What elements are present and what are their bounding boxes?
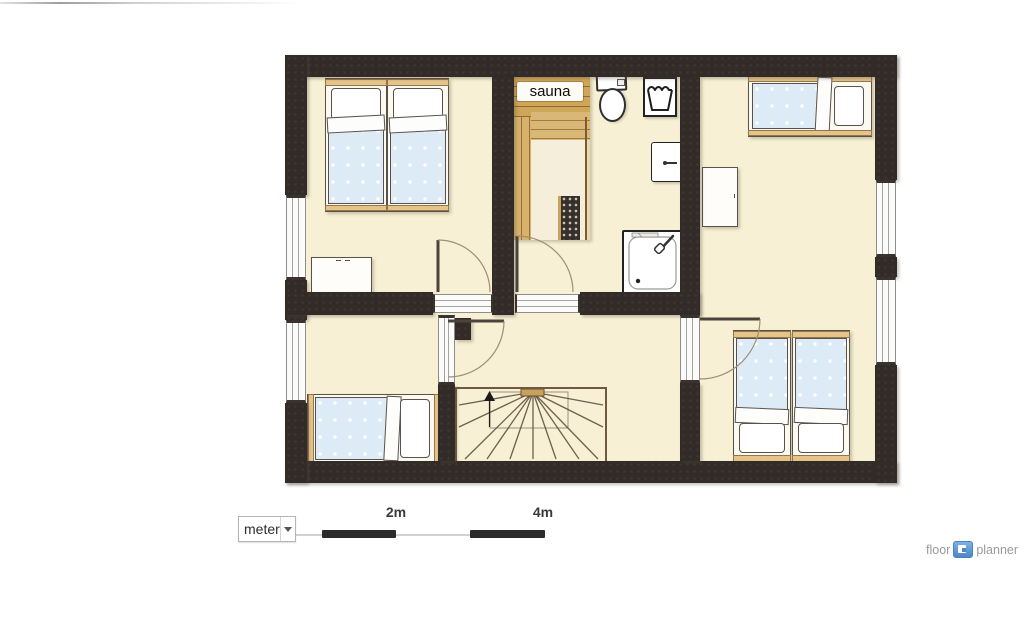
wall-cabinet-icon bbox=[651, 142, 683, 182]
duvet bbox=[328, 125, 384, 204]
toilet-flush-button bbox=[617, 79, 625, 86]
bed-footboard bbox=[792, 331, 850, 338]
sauna-glass-wall bbox=[585, 117, 587, 240]
bed-headboard bbox=[325, 79, 387, 86]
bed-footboard bbox=[308, 394, 314, 463]
blanket-fold bbox=[327, 114, 386, 133]
shower-icon bbox=[622, 230, 683, 296]
washtub-glyph bbox=[645, 79, 675, 115]
desk bbox=[702, 167, 738, 227]
blanket-fold bbox=[389, 114, 448, 133]
window bbox=[286, 320, 306, 403]
dresser bbox=[311, 257, 372, 297]
wall-stub bbox=[455, 318, 471, 340]
duvet bbox=[390, 125, 446, 204]
window bbox=[876, 180, 896, 257]
door-jamb bbox=[680, 315, 700, 383]
door-jamb bbox=[438, 315, 455, 385]
staircase bbox=[455, 387, 607, 463]
scale-tick-label: 4m bbox=[523, 504, 563, 520]
floorplanner-logo[interactable]: floor planner bbox=[926, 541, 1018, 558]
bed-single bbox=[733, 330, 791, 463]
bed-headboard bbox=[387, 79, 449, 86]
sauna-heater-icon bbox=[558, 196, 580, 240]
bed-single bbox=[748, 75, 872, 137]
wall-interior bbox=[680, 77, 700, 315]
wall-outer-bottom bbox=[285, 461, 897, 483]
bed-footboard bbox=[733, 331, 791, 338]
pillow bbox=[739, 423, 785, 453]
duvet bbox=[795, 338, 847, 416]
logo-text-floor: floor bbox=[926, 543, 950, 557]
blanket-fold bbox=[383, 396, 401, 462]
bed-footboard bbox=[387, 205, 449, 211]
shower-glyph bbox=[624, 232, 681, 294]
stairs-up-arrow-icon bbox=[484, 391, 495, 427]
door-sill bbox=[515, 294, 580, 313]
dresser-handle bbox=[336, 260, 341, 261]
duvet bbox=[736, 338, 788, 416]
wall-interior bbox=[285, 292, 433, 315]
wall-outer-left bbox=[285, 55, 307, 195]
logo-text-planner: planner bbox=[976, 543, 1018, 557]
wall-interior bbox=[438, 385, 455, 461]
floorplanner-logo-icon bbox=[953, 541, 973, 558]
pillow bbox=[798, 423, 844, 453]
scan-artifact-line bbox=[0, 2, 300, 4]
pillow bbox=[400, 399, 430, 458]
desk-handle bbox=[734, 194, 735, 198]
dresser-handle bbox=[345, 260, 350, 261]
scale-bar-segment bbox=[470, 530, 545, 538]
scale-bar-segment bbox=[322, 530, 396, 538]
wall-interior bbox=[680, 383, 700, 461]
bed-single bbox=[325, 78, 387, 212]
sauna-cabin: sauna bbox=[514, 77, 590, 240]
wall-outer-right bbox=[875, 55, 897, 180]
sauna-label: sauna bbox=[517, 82, 583, 101]
bed-single bbox=[792, 330, 850, 463]
door-sill bbox=[433, 294, 493, 313]
washbasin-icon bbox=[643, 77, 677, 117]
wall-outer-top bbox=[285, 55, 897, 77]
toilet-icon bbox=[596, 74, 628, 124]
dropdown-arrow-button[interactable] bbox=[280, 517, 295, 541]
bed-single bbox=[387, 78, 449, 212]
bed-footboard bbox=[325, 205, 387, 211]
floorplan-canvas: sauna bbox=[0, 0, 1024, 622]
scale-tick-label: 2m bbox=[376, 504, 416, 520]
wall-outer-right bbox=[875, 257, 897, 277]
blanket-fold bbox=[814, 77, 832, 136]
dropdown-arrow-icon bbox=[284, 527, 292, 532]
wall-outer-right bbox=[875, 365, 897, 483]
window bbox=[876, 277, 896, 365]
unit-dropdown-value: meter bbox=[239, 521, 280, 537]
cabinet-handle-bar bbox=[666, 162, 677, 164]
wall-interior bbox=[492, 77, 514, 315]
wall-interior bbox=[580, 292, 700, 315]
pillow bbox=[834, 86, 864, 126]
window bbox=[286, 195, 306, 280]
duvet bbox=[315, 397, 394, 460]
bed-single bbox=[307, 394, 441, 463]
toilet-bowl bbox=[599, 88, 626, 122]
stair-treads bbox=[457, 389, 605, 461]
sauna-bench-lower bbox=[531, 112, 590, 140]
unit-dropdown[interactable]: meter bbox=[238, 516, 296, 542]
bed-rail bbox=[748, 130, 872, 136]
wall-outer-left bbox=[285, 403, 307, 483]
duvet bbox=[752, 83, 825, 129]
